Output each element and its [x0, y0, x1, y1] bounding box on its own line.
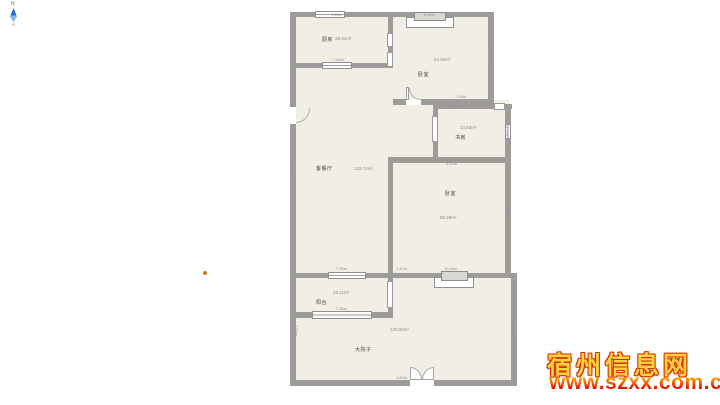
room-label-bedroom1: 卧室 — [418, 71, 429, 78]
compass-north-label: N — [11, 2, 15, 7]
dim-label: 5.33m — [505, 208, 509, 219]
dim-label: 5.43m — [446, 162, 457, 166]
dim-label: 7.90m — [336, 307, 347, 311]
dim-label: 5.00m — [448, 104, 459, 108]
room-label-kitchen: 厨房 — [322, 36, 333, 43]
door-kitchen-divider-upper — [387, 33, 393, 47]
wall-bottom-outer — [290, 380, 517, 386]
window-kitchen-bottom — [322, 62, 352, 69]
room-label-yard: 大院子 — [355, 346, 372, 353]
door-double-gap — [410, 379, 434, 386]
dim-label: 3.30m — [290, 163, 294, 174]
dim-label: 4.50m — [489, 50, 493, 61]
room-area-yard: 120.02m² — [390, 327, 409, 332]
room-area-bedroom2: 80.20m² — [440, 215, 457, 220]
door-balcony-right — [387, 281, 393, 308]
dim-label: 7.26m — [455, 95, 466, 99]
window-balcony-topwall — [328, 272, 366, 279]
dim-label: 6.85m — [511, 322, 515, 333]
room-label-balcony: 阳台 — [316, 299, 327, 306]
door-study-left — [432, 116, 438, 142]
room-area-kitchen: 28.91m² — [335, 36, 352, 41]
wall-mid-horizontal — [290, 273, 517, 278]
room-label-living: 客餐厅 — [316, 165, 333, 172]
room-area-balcony: 25.11m² — [333, 290, 349, 295]
bay-window-bedroom2-inner — [441, 271, 468, 281]
dim-label: 7.90m — [336, 267, 347, 271]
compass: N S — [8, 1, 22, 27]
dim-label: 1.41m — [396, 267, 407, 271]
compass-arrow-icon — [10, 8, 17, 22]
dim-label: 2.95m — [505, 126, 509, 137]
room-label-bedroom2: 卧室 — [445, 190, 456, 197]
orange-marker-dot — [203, 271, 207, 275]
room-area-bedroom1: 54.50m² — [434, 57, 451, 62]
dim-label: 7.69m — [331, 13, 342, 17]
window-step-corner — [494, 103, 505, 110]
window-balcony-bottom — [312, 311, 372, 319]
dim-label: 4.05m — [294, 325, 298, 336]
watermark-site-url: www.szxx.com.cn — [549, 371, 720, 395]
dim-label: 5.40m — [424, 13, 435, 17]
dim-label: 1.50m — [396, 376, 407, 380]
room-area-study: 23.63m² — [460, 125, 477, 130]
dim-label: 10.40m — [444, 267, 457, 271]
compass-south-label: S — [12, 22, 15, 27]
room-area-living: 133.74m² — [354, 166, 373, 171]
canvas: { "compass": { "north": "N", "south": "S… — [0, 0, 720, 405]
room-label-study: 书房 — [455, 134, 466, 141]
wall-living-bedroom2-divider — [388, 157, 393, 278]
dim-label: 7.60m — [333, 58, 344, 62]
door-kitchen-divider-lower — [387, 52, 393, 67]
